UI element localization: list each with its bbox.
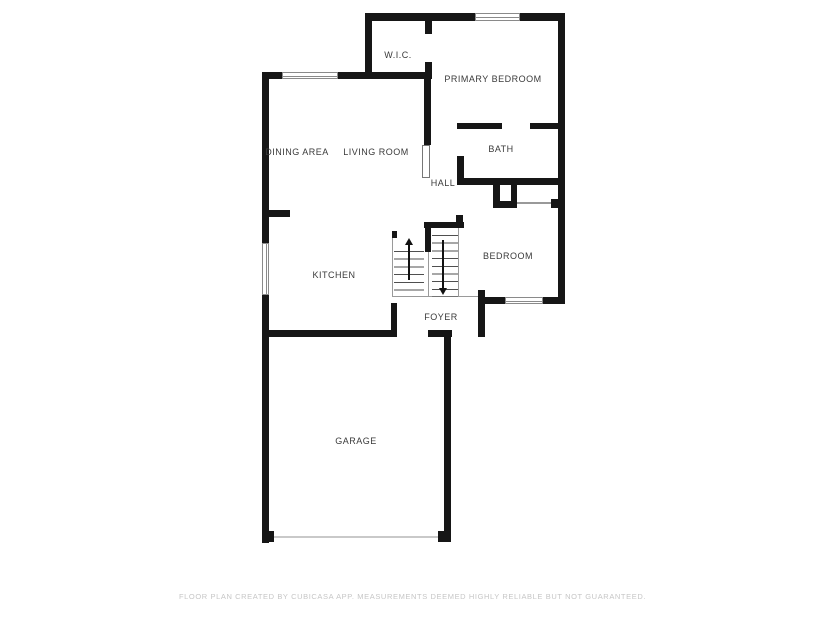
- window-kitchen: [262, 243, 269, 295]
- wic-divider-wall-lower: [425, 62, 432, 78]
- window-bedroom: [505, 297, 543, 304]
- room-label-foyer: FOYER: [424, 312, 458, 322]
- stair-right-line: [458, 228, 459, 297]
- stairs-down-arrow-shaft: [442, 240, 444, 288]
- room-label-hall: HALL: [431, 178, 456, 188]
- hall-door-leaf: [422, 145, 430, 178]
- kitchen-bottom-wall: [262, 330, 397, 337]
- disclaimer-text: FLOOR PLAN CREATED BY CUBICASA APP. MEAS…: [0, 592, 825, 601]
- closet-wall-right-stub: [551, 199, 558, 208]
- stair-divider-line: [428, 252, 429, 297]
- floor-plan: W.I.C. PRIMARY BEDROOM DINING AREA LIVIN…: [0, 0, 825, 619]
- window-dining: [282, 72, 338, 79]
- bath-top-wall-right: [530, 123, 558, 129]
- foyer-right-wall: [478, 290, 485, 337]
- bedroom-bottom-wall-left: [485, 297, 505, 304]
- foyer-bottom-wall: [428, 330, 452, 337]
- room-label-living-room: LIVING ROOM: [343, 147, 409, 157]
- room-label-bedroom: BEDROOM: [483, 251, 533, 261]
- window-primary-bedroom: [475, 13, 520, 21]
- exterior-wall-top: [365, 13, 565, 21]
- room-label-primary-bedroom: PRIMARY BEDROOM: [444, 74, 541, 84]
- room-label-kitchen: KITCHEN: [312, 270, 355, 280]
- garage-right-wall: [444, 337, 451, 532]
- wic-divider-wall-upper: [425, 13, 432, 34]
- wic-left-wall: [365, 13, 372, 78]
- stair-divider-wall: [425, 222, 431, 252]
- exterior-wall-left-upper: [262, 72, 269, 243]
- stair-foyer-stub-wall: [391, 303, 397, 330]
- hall-left-wall: [424, 79, 431, 145]
- closet-sliding-door-line: [517, 202, 551, 204]
- dining-kitchen-stub-wall: [268, 210, 290, 217]
- stairs-up-arrow-shaft: [408, 245, 410, 280]
- bedroom-bottom-wall-right: [543, 297, 565, 304]
- stair-left-line: [392, 238, 393, 296]
- room-label-dining-area: DINING AREA: [265, 147, 329, 157]
- exterior-wall-right: [558, 13, 565, 304]
- room-label-wic: W.I.C.: [384, 50, 412, 60]
- room-label-garage: GARAGE: [335, 436, 377, 446]
- stairs-up-arrow-icon: [405, 238, 413, 245]
- stairs-down-arrow-icon: [439, 288, 447, 295]
- bath-top-wall-left: [457, 123, 502, 129]
- garage-door-line: [274, 536, 438, 538]
- stair-left-cap-wall: [392, 231, 397, 238]
- room-label-bath: BATH: [488, 144, 513, 154]
- garage-corner-right: [438, 531, 451, 542]
- dining-top-wall-right: [338, 72, 432, 79]
- closet-wall-bottom: [493, 201, 517, 208]
